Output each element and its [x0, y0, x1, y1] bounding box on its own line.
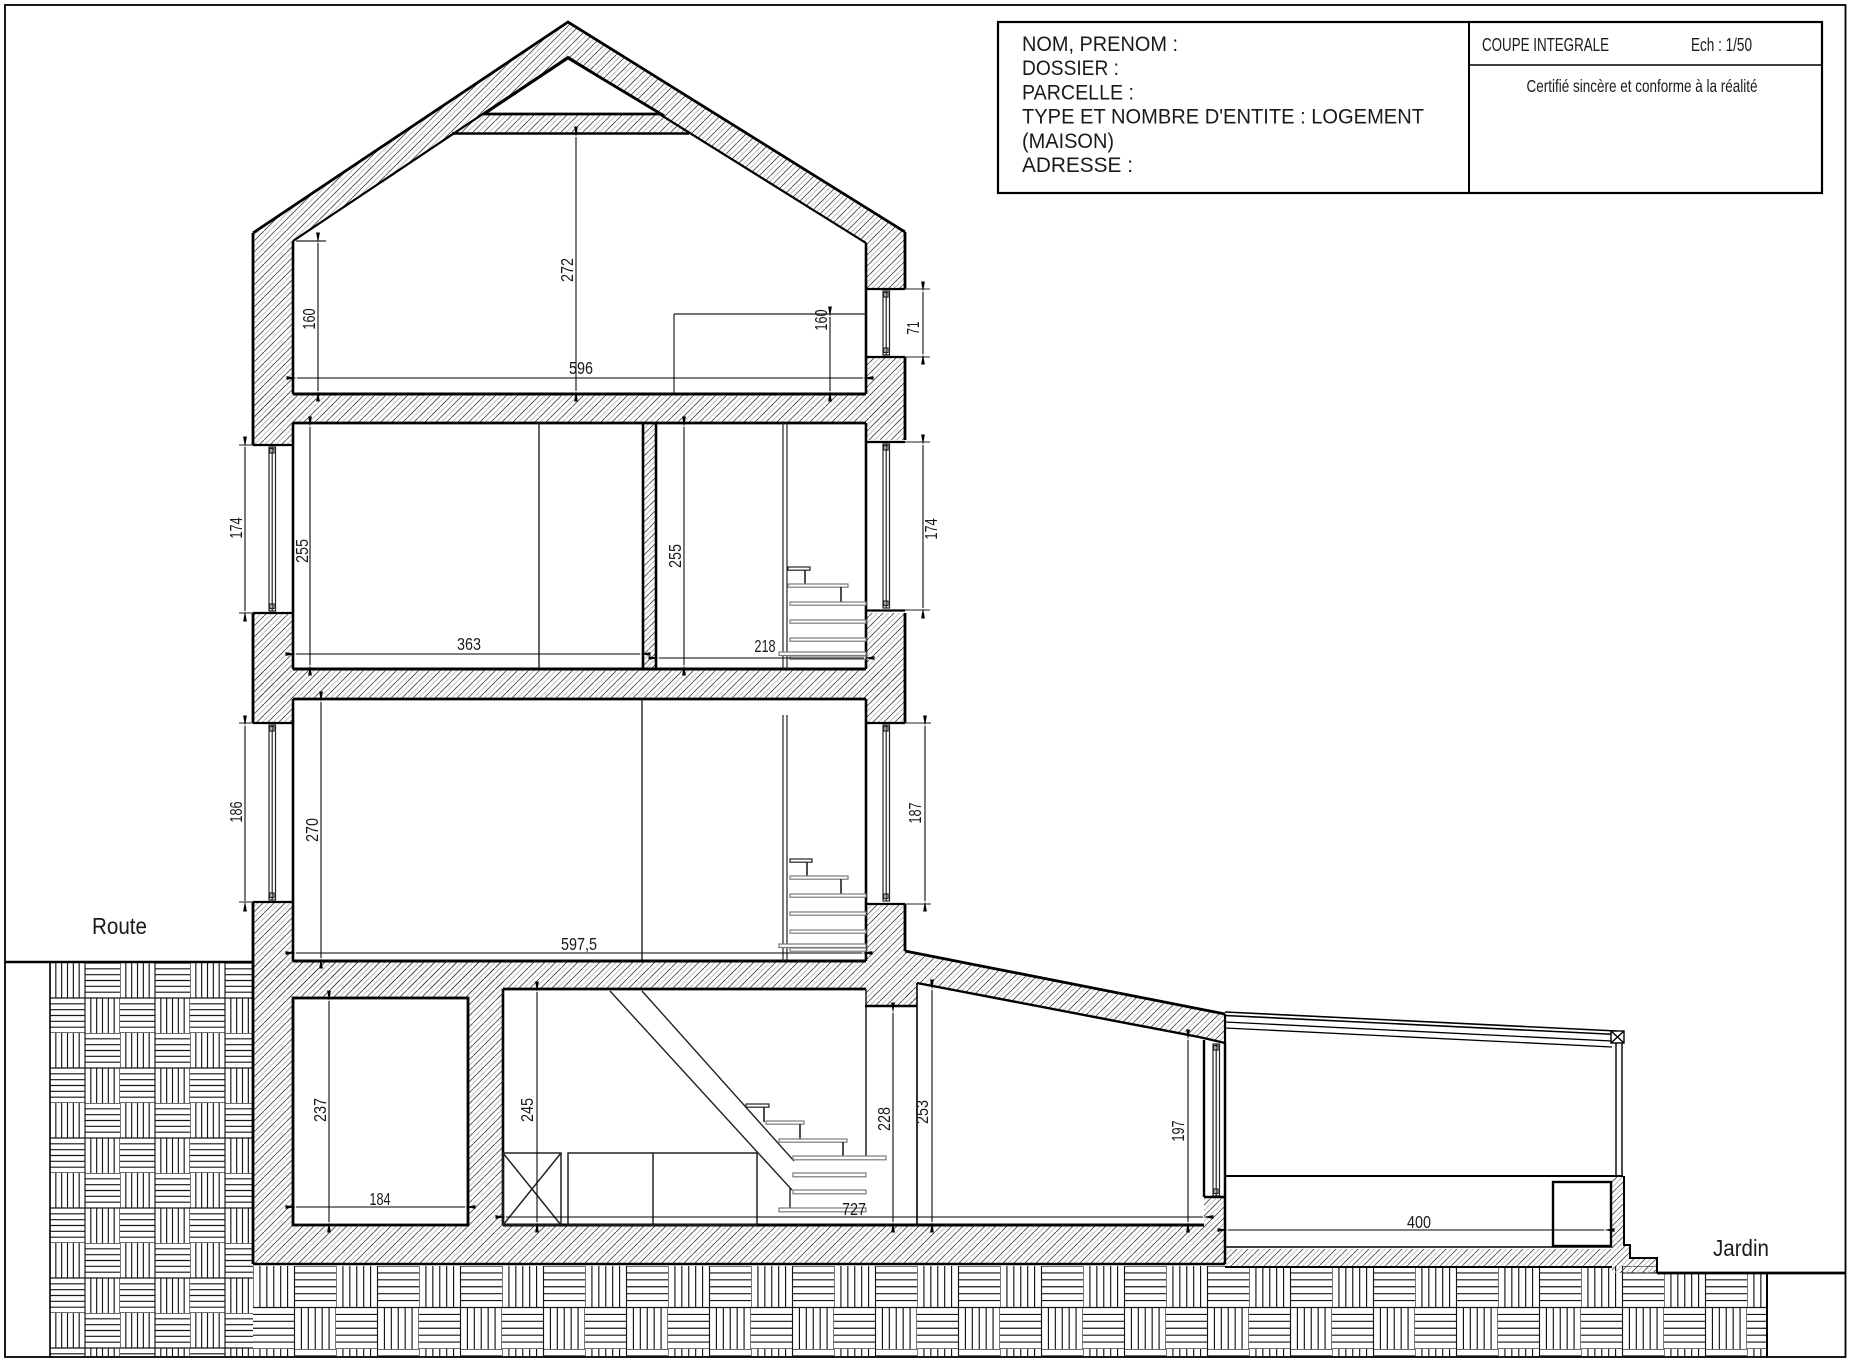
svg-text:245: 245 — [517, 1098, 537, 1122]
svg-text:187: 187 — [905, 802, 925, 823]
svg-text:71: 71 — [903, 321, 923, 334]
svg-text:160: 160 — [299, 308, 319, 329]
svg-text:400: 400 — [1407, 1212, 1431, 1232]
svg-text:255: 255 — [292, 539, 312, 563]
svg-text:TYPE ET NOMBRE D'ENTITE : LOGE: TYPE ET NOMBRE D'ENTITE : LOGEMENT — [1022, 106, 1424, 129]
svg-text:363: 363 — [457, 634, 481, 654]
svg-text:COUPE INTEGRALE: COUPE INTEGRALE — [1482, 35, 1609, 55]
svg-text:596: 596 — [569, 358, 593, 378]
svg-text:DOSSIER :: DOSSIER : — [1022, 57, 1119, 80]
svg-text:Route: Route — [92, 913, 147, 939]
svg-text:597,5: 597,5 — [561, 934, 597, 954]
svg-text:Certifié sincère et conforme à: Certifié sincère et conforme à la réalit… — [1527, 76, 1758, 96]
svg-text:197: 197 — [1168, 1120, 1188, 1141]
svg-text:160: 160 — [811, 309, 831, 330]
svg-text:Ech : 1/50: Ech : 1/50 — [1691, 35, 1752, 55]
svg-text:(MAISON): (MAISON) — [1022, 130, 1114, 153]
svg-text:272: 272 — [557, 258, 577, 282]
svg-text:218: 218 — [754, 636, 775, 656]
svg-text:174: 174 — [921, 518, 941, 539]
svg-text:270: 270 — [302, 818, 322, 842]
svg-text:186: 186 — [226, 801, 246, 822]
svg-text:237: 237 — [310, 1098, 330, 1122]
svg-text:174: 174 — [226, 517, 246, 538]
svg-text:Jardin: Jardin — [1713, 1235, 1769, 1261]
svg-text:ADRESSE :: ADRESSE : — [1022, 154, 1133, 177]
svg-text:727: 727 — [842, 1199, 866, 1219]
svg-text:228: 228 — [874, 1107, 894, 1131]
svg-text:253: 253 — [912, 1100, 932, 1124]
svg-text:PARCELLE :: PARCELLE : — [1022, 81, 1134, 104]
svg-text:NOM, PRENOM :: NOM, PRENOM : — [1022, 33, 1178, 56]
svg-text:184: 184 — [369, 1189, 390, 1209]
svg-text:255: 255 — [665, 544, 685, 568]
